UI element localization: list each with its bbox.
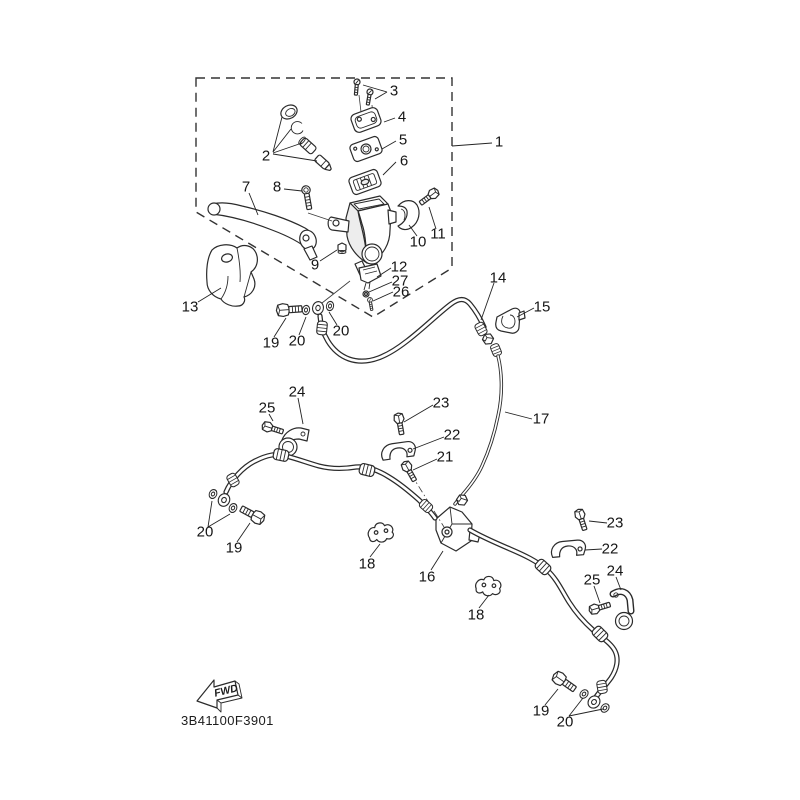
leader-5 <box>382 141 396 149</box>
part-bracket-bolt-1 <box>261 420 285 436</box>
part-washer <box>326 301 335 311</box>
part-union-bolt-left <box>238 503 267 526</box>
leader-2 <box>273 117 317 161</box>
part-clamp-bolt <box>417 186 440 207</box>
part-pipe-joint <box>490 343 503 357</box>
leader-14 <box>481 283 494 320</box>
callout-21: 21 <box>437 449 454 466</box>
part-clamp-bolt-mid <box>393 412 407 435</box>
callout-5: 5 <box>399 132 407 149</box>
callout-20-top1: 20 <box>289 333 306 350</box>
part-clamp-bolt-rt <box>573 508 589 532</box>
drawing-code: 3B41100F3901 <box>181 713 274 728</box>
parts-diagram-page: 1 2 3 4 5 6 7 8 9 10 11 12 27 26 13 19 2… <box>0 0 800 800</box>
callout-20-top2: 20 <box>333 323 350 340</box>
callout-7: 7 <box>242 179 250 196</box>
leader-25b <box>594 586 600 603</box>
part-hose-grommet <box>273 448 290 462</box>
part-switch-screw <box>367 297 374 311</box>
callout-10: 10 <box>410 234 427 251</box>
parts-diagram: 1 2 3 4 5 6 7 8 9 10 11 12 27 26 13 19 2… <box>0 0 800 800</box>
callout-25-right: 25 <box>584 572 601 589</box>
callout-23-right: 23 <box>607 515 624 532</box>
leader-24a <box>298 398 303 424</box>
callout-18-1: 18 <box>359 556 376 573</box>
callout-labels: 1 2 3 4 5 6 7 8 9 10 11 12 27 26 13 19 2… <box>182 83 624 731</box>
leader-17 <box>505 412 532 419</box>
part-union-bolt-top <box>276 302 302 317</box>
part-master-cylinder <box>308 196 396 275</box>
callout-25-left: 25 <box>259 400 276 417</box>
callout-23-mid: 23 <box>433 395 450 412</box>
fwd-arrow: FWD <box>197 680 242 712</box>
part-pivot-nut <box>338 243 346 254</box>
leader-6 <box>383 162 396 175</box>
leader-23a <box>404 405 433 422</box>
callout-4: 4 <box>398 109 406 126</box>
part-diaphragm <box>348 168 382 195</box>
callout-8: 8 <box>273 179 281 196</box>
leader-8 <box>284 189 302 191</box>
part-lever-guard <box>207 245 258 306</box>
callout-14: 14 <box>490 270 507 287</box>
callout-11: 11 <box>430 226 446 243</box>
callout-2: 2 <box>262 148 270 165</box>
part-guard-bracket-2 <box>613 592 633 630</box>
part-cap-plate <box>349 135 383 162</box>
callout-26: 26 <box>393 284 410 301</box>
fwd-label: FWD <box>213 682 240 700</box>
part-piston-kit <box>278 102 333 172</box>
callout-24-left: 24 <box>289 384 306 401</box>
callout-16: 16 <box>419 569 436 586</box>
part-hose-clamp-rt <box>551 539 587 557</box>
leader-9 <box>320 250 337 261</box>
callout-1: 1 <box>495 134 503 151</box>
leader-23b <box>589 521 607 523</box>
callout-9: 9 <box>311 257 319 274</box>
part-circlip <box>291 122 303 134</box>
part-hose-eye <box>586 693 603 710</box>
part-switch-washer <box>363 291 369 297</box>
part-reservoir-cap <box>350 106 383 133</box>
part-union-bolt-br <box>550 669 578 694</box>
callout-20-br: 20 <box>557 714 574 731</box>
leader-27 <box>369 282 392 292</box>
part-brake-pipe <box>455 356 501 504</box>
part-hose-eye <box>216 492 232 508</box>
part-washer <box>578 688 590 700</box>
part-hose-ferrule <box>596 680 607 694</box>
part-washer <box>302 305 311 315</box>
part-hose-clip <box>496 308 525 333</box>
part-pipe-nut <box>455 493 469 508</box>
part-joint-bolt <box>400 459 419 483</box>
leader-16 <box>431 551 443 570</box>
part-hose-clamp-mid <box>380 441 416 461</box>
leader-22a <box>413 437 444 449</box>
callout-19-left: 19 <box>226 540 243 557</box>
callout-19-br: 19 <box>533 703 550 720</box>
callout-6: 6 <box>400 153 408 170</box>
callout-20-left: 20 <box>197 524 214 541</box>
part-wire-clip-1 <box>367 522 394 543</box>
leader-1 <box>452 143 492 146</box>
leader-26 <box>373 292 393 301</box>
callout-13: 13 <box>182 299 199 316</box>
part-hose-ferrule <box>316 321 327 335</box>
leader-21 <box>413 459 437 470</box>
callout-17: 17 <box>533 411 550 428</box>
callout-15: 15 <box>534 299 551 316</box>
leader-4 <box>384 118 395 122</box>
part-washer <box>228 502 239 513</box>
part-hose-grommet <box>358 463 375 477</box>
part-pivot-bolt <box>301 185 313 210</box>
callout-18-2: 18 <box>468 607 485 624</box>
part-washer <box>599 702 611 714</box>
callout-3: 3 <box>390 83 398 100</box>
part-washer <box>208 488 219 499</box>
callout-19-top: 19 <box>263 335 280 352</box>
leader-22b <box>585 549 602 550</box>
callout-22-mid: 22 <box>444 427 461 444</box>
callout-22-right: 22 <box>602 541 619 558</box>
part-bracket-clamp <box>398 201 419 230</box>
callout-24-right: 24 <box>607 563 624 580</box>
part-wire-clip-2 <box>474 574 502 597</box>
